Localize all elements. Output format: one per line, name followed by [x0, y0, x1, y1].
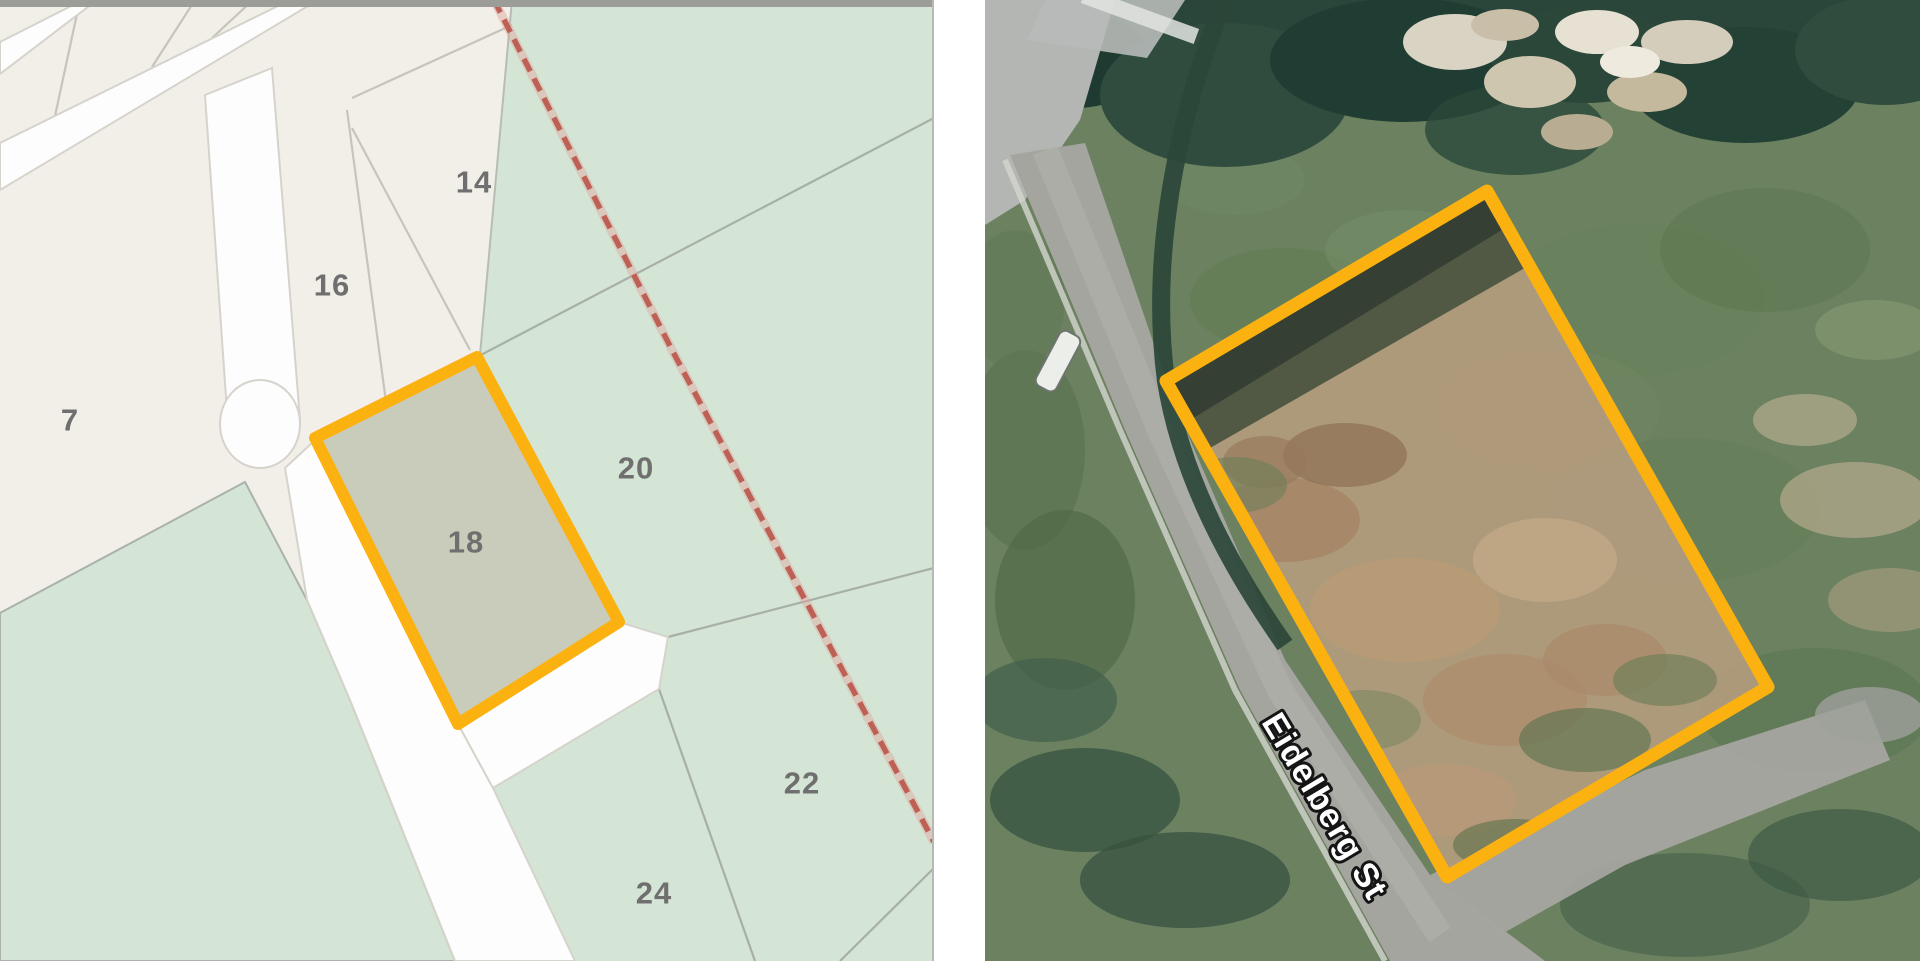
road-branch-end [1815, 687, 1920, 743]
aerial-photo-panel: Eidelberg St [985, 0, 1920, 961]
aerial-photo: Eidelberg St [985, 0, 1920, 961]
lot-label-18: 18 [448, 525, 484, 560]
map-top-edge [0, 0, 934, 7]
cadastral-map: 7141618202224 [0, 0, 934, 961]
lot-label-24: 24 [636, 876, 672, 911]
lot-label-22: 22 [784, 766, 820, 801]
lot-label-7: 7 [61, 403, 79, 438]
cul-de-sac-bulb [220, 380, 300, 468]
comparison-figure: 7141618202224 [0, 0, 1920, 961]
lot-label-14: 14 [456, 165, 492, 200]
lot-label-16: 16 [314, 268, 350, 303]
lot-label-20: 20 [618, 451, 654, 486]
cadastral-map-panel: 7141618202224 [0, 0, 934, 961]
